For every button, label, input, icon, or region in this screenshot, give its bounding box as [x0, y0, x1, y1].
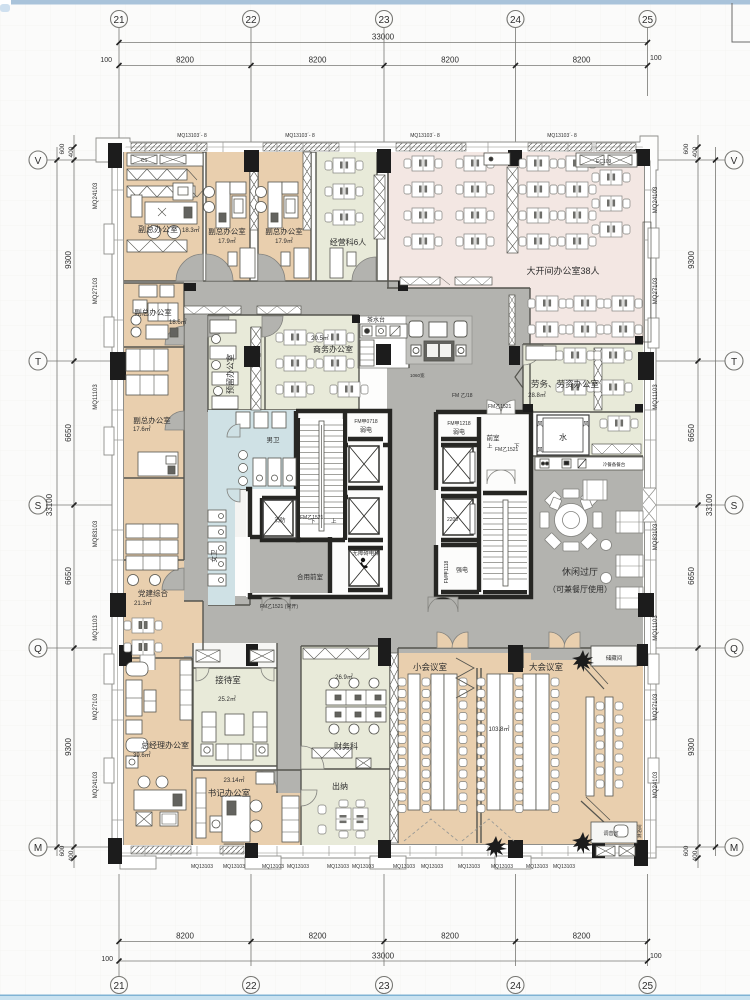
svg-text:无障碍电梯: 无障碍电梯	[352, 549, 380, 557]
svg-text:副总办公室: 副总办公室	[134, 307, 172, 317]
svg-text:商务办公室: 商务办公室	[313, 344, 353, 354]
svg-text:前室: 前室	[487, 433, 501, 442]
svg-text:8200: 8200	[309, 56, 327, 65]
svg-text:600: 600	[59, 845, 66, 856]
svg-text:MQ13103: MQ13103	[223, 864, 245, 870]
svg-text:风: 风	[583, 421, 589, 428]
svg-text:33100: 33100	[45, 493, 54, 516]
svg-text:6650: 6650	[64, 567, 73, 585]
svg-text:25: 25	[642, 15, 654, 26]
svg-text:23.14㎡: 23.14㎡	[223, 776, 244, 784]
svg-text:副总办公室: 副总办公室	[133, 415, 171, 425]
svg-text:33100: 33100	[705, 493, 714, 516]
svg-text:弱电: 弱电	[360, 426, 372, 434]
svg-text:Q: Q	[730, 644, 738, 655]
svg-text:上: 上	[331, 517, 337, 525]
svg-text:MQ13103: MQ13103	[526, 864, 548, 870]
svg-text:8200: 8200	[309, 932, 327, 941]
svg-text:劳务、劳资办公室: 劳务、劳资办公室	[531, 379, 600, 389]
svg-text:25.2㎡: 25.2㎡	[218, 695, 236, 703]
svg-text:FM甲0718: FM甲0718	[354, 419, 378, 425]
svg-text:MQ13103: MQ13103	[393, 864, 415, 870]
svg-text:M: M	[730, 843, 738, 854]
svg-text:MQ13103´- 8: MQ13103´- 8	[410, 133, 440, 139]
svg-text:淋浴间: 淋浴间	[636, 824, 643, 838]
svg-text:接待室: 接待室	[215, 675, 241, 685]
svg-text:400: 400	[692, 146, 699, 157]
svg-text:25: 25	[642, 981, 654, 992]
svg-text:400: 400	[68, 146, 75, 157]
svg-text:17.9㎡: 17.9㎡	[275, 237, 293, 245]
svg-text:出纳: 出纳	[332, 781, 348, 791]
svg-text:T: T	[731, 357, 737, 368]
svg-text:M: M	[34, 843, 42, 854]
svg-text:风: 风	[537, 421, 543, 428]
svg-text:103.8㎡: 103.8㎡	[488, 725, 509, 733]
svg-text:MQ13103: MQ13103	[421, 864, 443, 870]
svg-text:FM乙1521 (常开): FM乙1521 (常开)	[260, 603, 298, 610]
svg-text:20.5㎡: 20.5㎡	[311, 334, 329, 342]
svg-text:MQ13103: MQ13103	[287, 864, 309, 870]
svg-text:21: 21	[113, 981, 125, 992]
svg-text:EC109: EC109	[596, 159, 612, 165]
svg-text:8200: 8200	[176, 56, 194, 65]
svg-text:副总办公室: 副总办公室	[208, 226, 246, 236]
svg-text:MQ13103: MQ13103	[191, 864, 213, 870]
svg-text:MQ11103: MQ11103	[93, 615, 99, 641]
svg-text:FM乙1521: FM乙1521	[488, 403, 512, 410]
svg-text:600: 600	[59, 143, 66, 154]
svg-text:大开间办公室38人: 大开间办公室38人	[526, 265, 599, 276]
svg-text:大会议室: 大会议室	[529, 662, 564, 672]
svg-text:6650: 6650	[687, 567, 696, 585]
svg-text:MQ13103´- 8: MQ13103´- 8	[547, 133, 577, 139]
svg-text:书记办公室: 书记办公室	[208, 788, 251, 798]
svg-text:S: S	[35, 501, 42, 512]
svg-text:休闲过厅: 休闲过厅	[562, 566, 598, 577]
svg-text:8200: 8200	[441, 56, 459, 65]
svg-text:100: 100	[650, 55, 662, 62]
svg-text:MQ27103: MQ27103	[653, 693, 659, 720]
svg-text:MQ13103´- 8: MQ13103´- 8	[285, 133, 315, 139]
svg-text:V: V	[35, 156, 42, 167]
svg-text:MQ13103: MQ13103	[491, 864, 513, 870]
svg-text:经营科6人: 经营科6人	[330, 237, 366, 247]
svg-text:副总办公室: 副总办公室	[138, 224, 178, 234]
svg-text:MQ13103: MQ13103	[352, 864, 374, 870]
svg-text:MQ13103´- 8: MQ13103´- 8	[177, 133, 207, 139]
svg-text:MQ13103: MQ13103	[458, 864, 480, 870]
svg-text:6650: 6650	[64, 424, 73, 442]
svg-text:MQ24103: MQ24103	[93, 182, 99, 209]
svg-text:MQ27103: MQ27103	[93, 277, 99, 304]
svg-text:强电: 强电	[456, 566, 468, 574]
svg-text:男卫: 男卫	[267, 436, 281, 444]
svg-text:MQ13103: MQ13103	[327, 864, 349, 870]
svg-text:副总办公室: 副总办公室	[265, 226, 303, 236]
svg-text:弱电: 弱电	[453, 428, 465, 436]
svg-text:28.8㎡: 28.8㎡	[528, 391, 546, 399]
svg-text:MQ83103: MQ83103	[653, 523, 659, 550]
svg-text:下: 下	[514, 443, 520, 450]
svg-text:MQ27103: MQ27103	[93, 693, 99, 720]
svg-text:合用前室: 合用前室	[297, 572, 324, 581]
svg-text:8200: 8200	[573, 56, 591, 65]
svg-text:风: 风	[537, 447, 543, 454]
svg-text:22: 22	[245, 15, 257, 26]
svg-text:17.9㎡: 17.9㎡	[218, 237, 236, 245]
svg-text:22: 22	[245, 981, 257, 992]
svg-text:23: 23	[378, 15, 390, 26]
svg-text:FM甲1118: FM甲1118	[444, 560, 450, 583]
svg-text:8200: 8200	[176, 932, 194, 941]
svg-text:女卫: 女卫	[209, 549, 218, 563]
svg-text:T: T	[35, 357, 41, 368]
svg-text:FM甲1218: FM甲1218	[447, 421, 471, 427]
svg-text:400: 400	[692, 850, 699, 861]
svg-text:MQ11103: MQ11103	[653, 384, 659, 410]
svg-text:总经理办公室: 总经理办公室	[141, 740, 189, 750]
svg-text:茶水台: 茶水台	[367, 316, 385, 324]
svg-text:600: 600	[683, 845, 690, 856]
svg-text:8200: 8200	[573, 932, 591, 941]
svg-text:400: 400	[68, 850, 75, 861]
svg-text:储藏间: 储藏间	[606, 654, 623, 662]
svg-text:MQ11103: MQ11103	[93, 384, 99, 410]
svg-text:33000: 33000	[372, 952, 395, 961]
svg-text:33000: 33000	[372, 33, 395, 42]
svg-text:V: V	[731, 156, 738, 167]
svg-text:6650: 6650	[687, 424, 696, 442]
svg-text:2200: 2200	[447, 517, 458, 523]
svg-text:（可兼餐厅使用）: （可兼餐厅使用）	[548, 584, 612, 594]
svg-text:9300: 9300	[687, 251, 696, 269]
svg-text:9300: 9300	[64, 251, 73, 269]
svg-text:MQ13103: MQ13103	[553, 864, 575, 870]
svg-text:MQ83103: MQ83103	[93, 520, 99, 547]
svg-text:100: 100	[100, 57, 112, 64]
svg-text:100: 100	[101, 956, 113, 963]
svg-text:100: 100	[650, 953, 662, 960]
svg-text:39.6㎡: 39.6㎡	[133, 751, 151, 759]
svg-text:21: 21	[113, 15, 125, 26]
svg-text:MQ11103: MQ11103	[653, 615, 659, 641]
svg-text:MQ24103: MQ24103	[653, 771, 659, 798]
svg-text:MQ24103: MQ24103	[653, 186, 659, 213]
svg-text:8200: 8200	[441, 932, 459, 941]
svg-text:S: S	[731, 501, 738, 512]
svg-text:1060宽: 1060宽	[410, 372, 425, 379]
svg-text:18.3㎡: 18.3㎡	[182, 226, 200, 234]
svg-text:23: 23	[378, 981, 390, 992]
svg-text:FM 乙/18: FM 乙/18	[452, 392, 473, 399]
svg-text:上: 上	[487, 442, 493, 450]
svg-text:MQ24103: MQ24103	[93, 771, 99, 798]
svg-text:预留办公室: 预留办公室	[225, 354, 235, 394]
svg-text:小会议室: 小会议室	[413, 662, 448, 672]
svg-text:MQ13103: MQ13103	[262, 864, 284, 870]
svg-text:26.9㎡: 26.9㎡	[335, 673, 353, 681]
svg-text:21.3㎡: 21.3㎡	[134, 599, 152, 607]
svg-text:消防: 消防	[274, 516, 286, 524]
svg-text:水: 水	[559, 432, 567, 442]
svg-text:18.6㎡: 18.6㎡	[169, 318, 187, 326]
svg-text:财务科: 财务科	[334, 741, 358, 751]
svg-text:党建综合: 党建综合	[138, 588, 168, 598]
svg-text:24: 24	[510, 981, 522, 992]
svg-text:下: 下	[310, 518, 316, 525]
svg-text:C1: C1	[141, 158, 148, 164]
svg-text:冷餐备餐台: 冷餐备餐台	[603, 461, 626, 468]
svg-text:MQ27103: MQ27103	[653, 277, 659, 304]
svg-text:24: 24	[510, 15, 522, 26]
svg-text:600: 600	[683, 143, 690, 154]
svg-text:17.6㎡: 17.6㎡	[133, 425, 151, 433]
svg-text:Q: Q	[34, 644, 42, 655]
svg-text:9300: 9300	[64, 738, 73, 756]
svg-text:调音室: 调音室	[603, 830, 618, 837]
svg-text:9300: 9300	[687, 738, 696, 756]
